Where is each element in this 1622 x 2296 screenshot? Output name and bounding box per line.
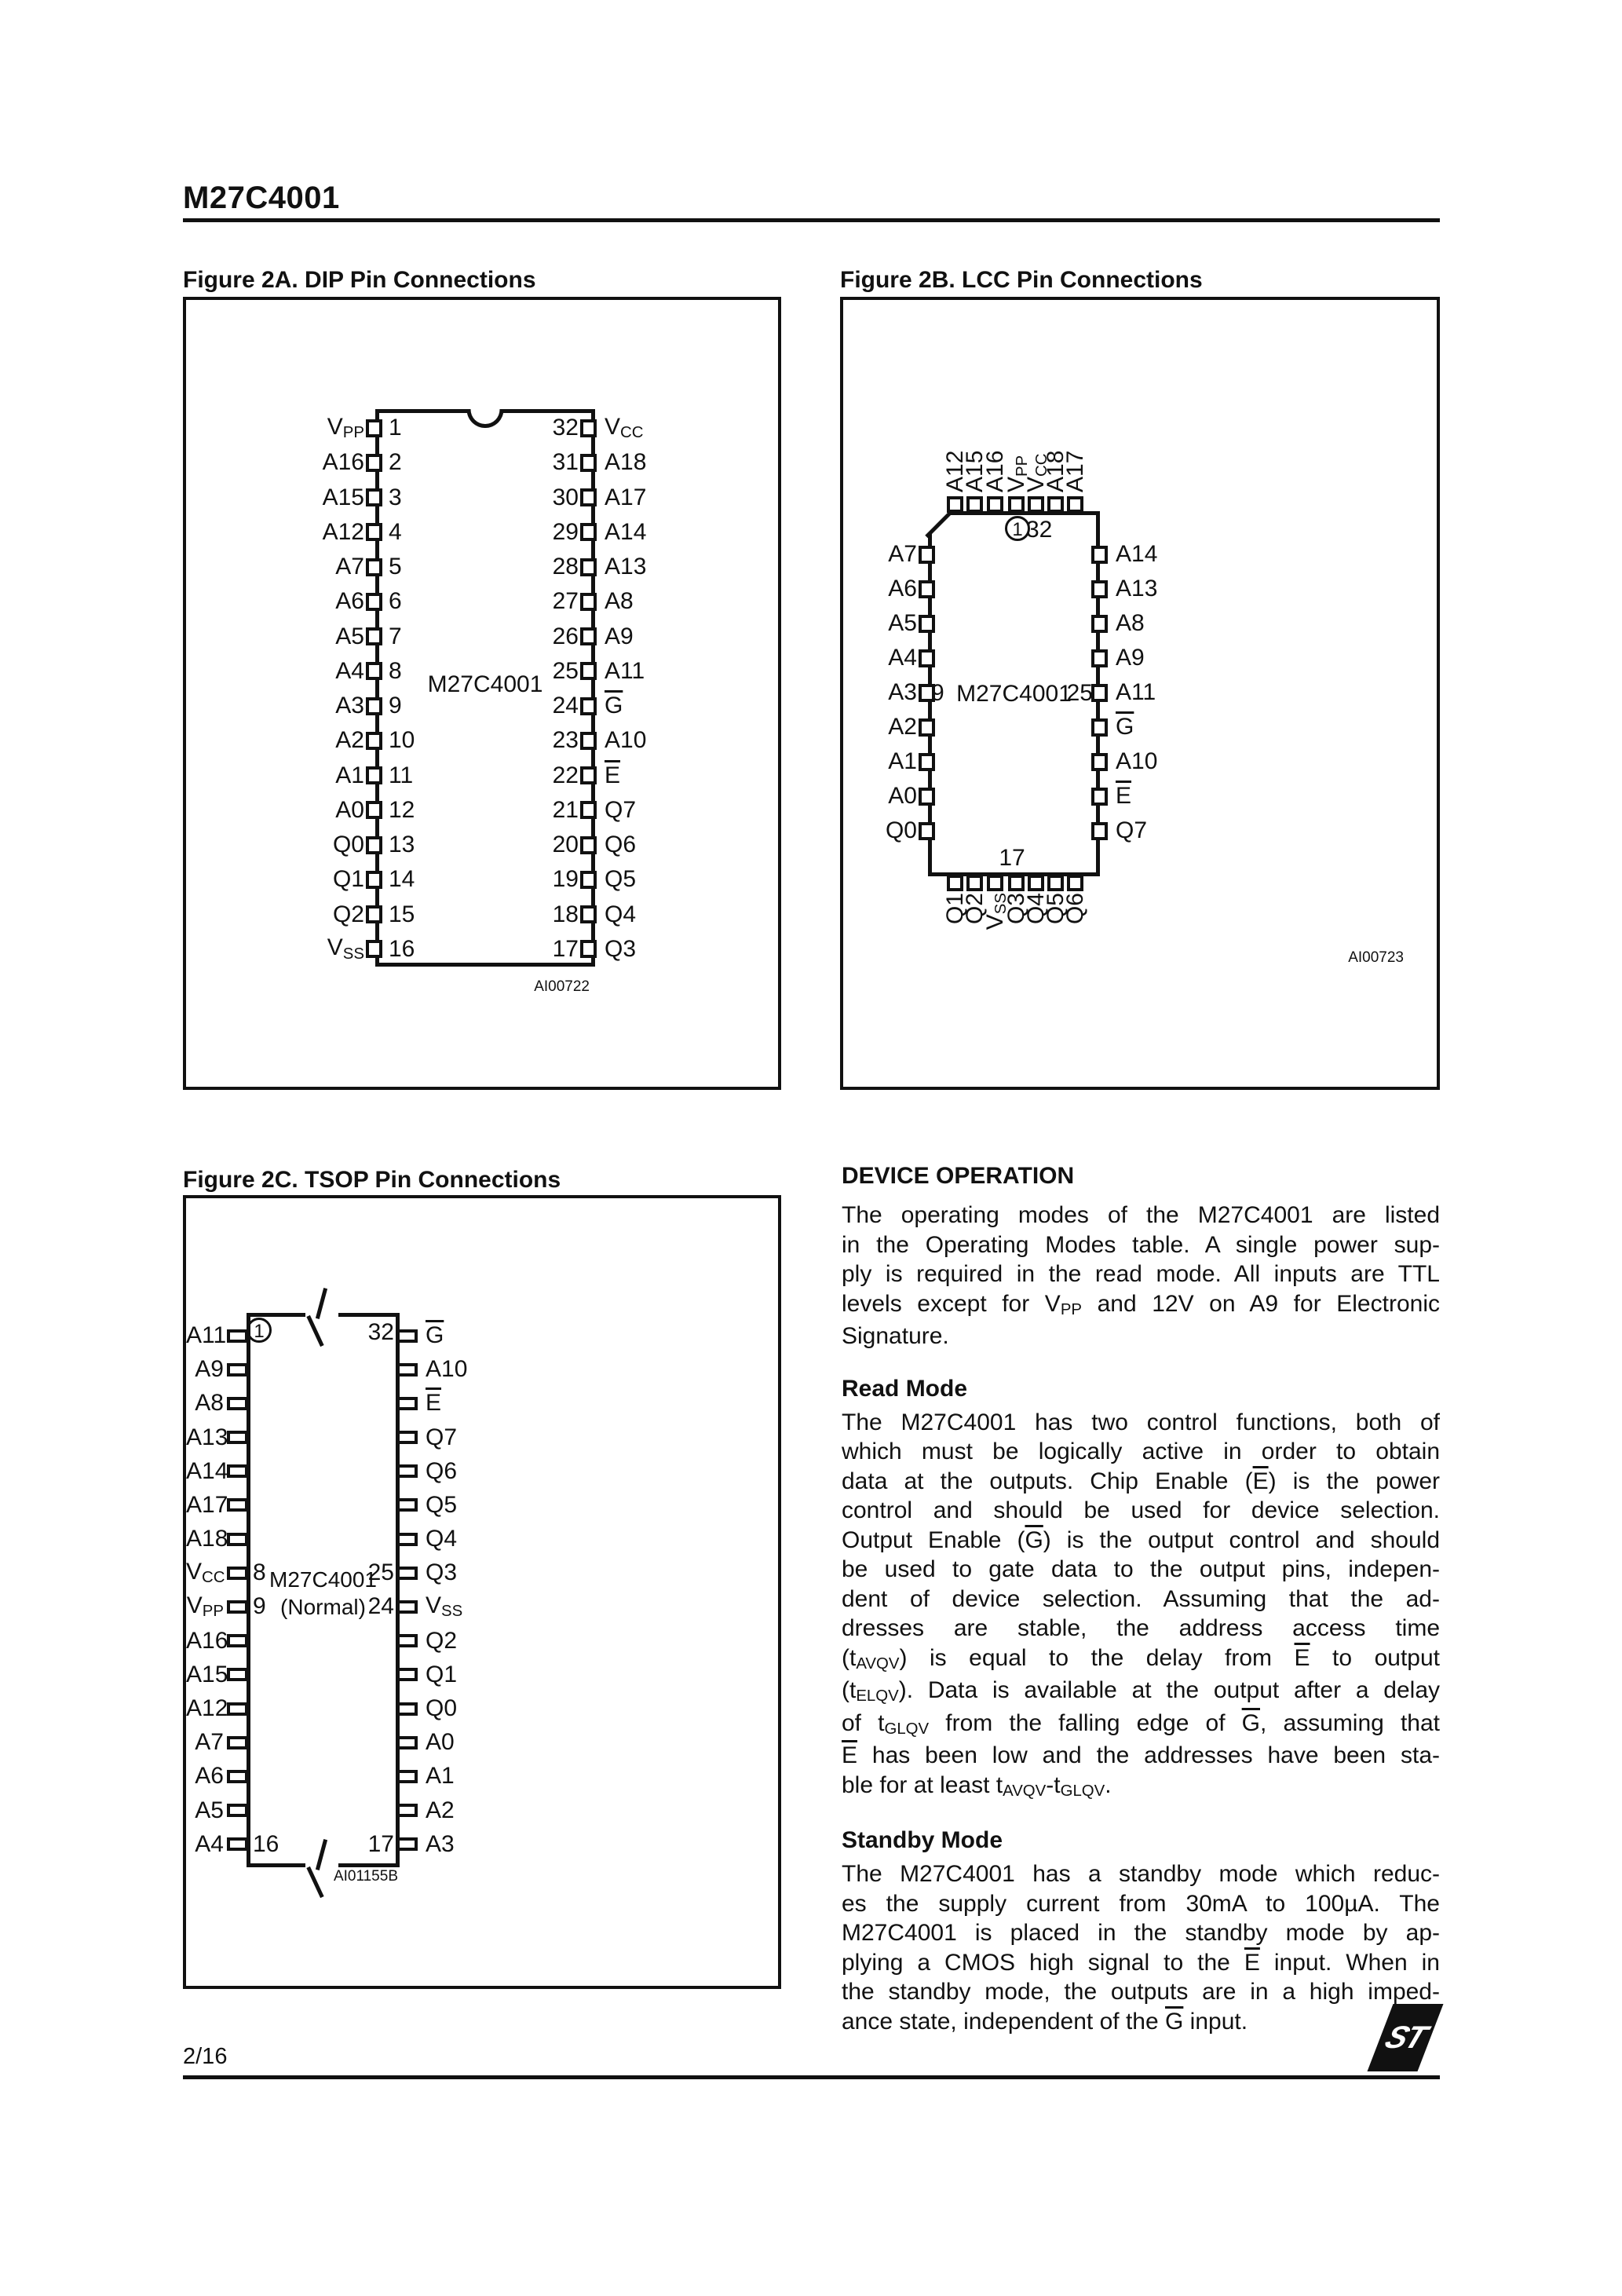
pin-label-right: A14 [597,520,784,545]
pin-label-left: A11 [186,1323,227,1348]
pin-number-left: 10 [382,728,418,753]
dip-pin-row: A5 7 26 A9 [186,624,784,649]
tsop-pin17-number: 17 [355,1833,394,1856]
pin-stub-left-icon [227,1736,248,1749]
pin-stub-left-icon [227,1770,248,1783]
pin-stub-icon [1091,822,1108,840]
pin-stub-right-icon [396,1397,418,1410]
lcc-right-pin: A10 [1091,750,1441,773]
pin-stub-left-icon [366,766,382,784]
figure-2c-title: Figure 2C. TSOP Pin Connections [183,1167,561,1194]
st-logo-text: ST [1380,2020,1430,2056]
pin-number-right: 19 [539,867,579,892]
pin-label-left: VPP [186,415,366,442]
pin-label-right: VSS [418,1593,784,1621]
pin-stub-icon [1067,875,1083,891]
pin-stub-right-icon [396,1464,418,1478]
pin-label-left: A4 [186,659,366,684]
pin-number-left: 14 [382,867,418,892]
text-line: M27C4001 is placed in the standby mode b… [842,1918,1440,1948]
pin-stub-right-icon [580,940,597,958]
pin-label: A8 [1108,611,1145,636]
pin-stub-right-icon [396,1363,418,1377]
text-line: which must be logically active in order … [842,1437,1440,1467]
lcc-right-pin: E [1091,784,1441,808]
text-line: dent of device selection. Assuming that … [842,1585,1440,1614]
tsop-pin-row: A9 A10 [186,1358,784,1381]
pin-label-right: Q5 [597,867,784,892]
text-line: levels except for VPP and 12V on A9 for … [842,1289,1440,1322]
pin-stub-left-icon [366,732,382,750]
pin-stub-right-icon [580,454,597,472]
pin-label-right: A11 [597,659,784,684]
pin-number-right: 22 [539,763,579,788]
lcc-left-pin: A3 [843,681,935,704]
pin-number-right: 17 [539,937,579,962]
text-line: the standby mode, the outputs are in a h… [842,1977,1440,2007]
pin-stub-right-icon [580,732,597,750]
pin-stub-left-icon [227,1702,248,1716]
pin-label: A4 [843,645,919,671]
pin-label-right: VCC [597,415,784,442]
pin-number-right: 20 [539,832,579,857]
text-line: The M27C4001 has a standby mode which re… [842,1859,1440,1889]
figure-2b-frame: A12 A15 A16 VPP [840,297,1440,1090]
tsop-pin-row: A14 Q6 [186,1460,784,1483]
pin-stub-icon [1091,546,1108,564]
pin-stub-left-icon [366,905,382,923]
lcc-left-pin: A1 [843,750,935,773]
pin-stub-right-icon [396,1668,418,1681]
lcc-right-pin: A9 [1091,646,1441,670]
lcc-chip-name: M27C4001 [928,682,1100,707]
pin-label-right: Q3 [418,1560,784,1585]
device-operation-heading: DEVICE OPERATION [842,1164,1440,1188]
lcc-left-pin: A4 [843,646,935,670]
lcc-left-pins: A7 A6 A5 A4 A3 [843,543,935,843]
pin-stub-left-icon [366,697,382,715]
tsop-pin-row: A17 Q5 [186,1493,784,1517]
pin-label-right: A9 [597,624,784,649]
pin-stub-icon [919,822,935,840]
pin-stub-left-icon [366,940,382,958]
page-number: 2/16 [183,2044,227,2070]
lcc-left-pin: A6 [843,577,935,601]
figure-2c-frame: A11 G A9 A10 A8 [183,1195,781,1989]
pin-label: A10 [1108,749,1157,774]
pin-label-left: A15 [186,485,366,510]
pin-stub-left-icon [366,419,382,437]
pin-stub-icon [987,875,1003,891]
pin-stub-left-icon [227,1431,248,1444]
pin-number-left: 13 [382,832,418,857]
pin-label-right: Q6 [418,1459,784,1484]
device-operation-section: DEVICE OPERATION The operating modes of … [842,1164,1440,2036]
text-line: control and should be used for device se… [842,1496,1440,1526]
pin-number-left: 1 [382,415,418,441]
tsop-pin-row: A12 Q0 [186,1697,784,1720]
pin-stub-icon [1091,649,1108,667]
pin-stub-icon [919,615,935,633]
pin-number-right: 21 [539,798,579,823]
dip-pin-row: Q1 14 19 Q5 [186,867,784,892]
pin-label: A17 [1063,375,1087,492]
pin-label-right: E [597,763,784,788]
lcc-left-pin: A2 [843,715,935,739]
pin-stub-left-icon [366,454,382,472]
pin-label-right: Q7 [597,798,784,823]
pin-number-right: 30 [539,485,579,510]
lcc-right-pin: Q7 [1091,819,1441,843]
pin-stub-icon [919,546,935,564]
pin-stub-icon [947,496,963,513]
text-line: in the Operating Modes table. A single p… [842,1230,1440,1260]
pin-label-left: A0 [186,798,366,823]
pin-stub-icon [1067,496,1083,513]
dip-pin-row: A6 6 27 A8 [186,589,784,614]
header-rule [183,218,1440,222]
tsop-pin-row: A13 Q7 [186,1426,784,1450]
dip-pin-row: Q0 13 20 Q6 [186,832,784,857]
tsop-pin-row: A18 Q4 [186,1527,784,1551]
pin-label-left: A6 [186,1764,227,1789]
text-line: (tAVQV) is equal to the delay from E to … [842,1643,1440,1676]
pin-stub-right-icon [580,697,597,715]
pin-label-right: A3 [418,1832,784,1857]
pin-stub-right-icon [396,1533,418,1546]
pin-stub-left-icon [227,1567,248,1580]
lcc-left-pin: A7 [843,543,935,566]
pin-number-right: 26 [539,624,579,649]
text-line: es the supply current from 30mA to 100µA… [842,1889,1440,1919]
pin-stub-left-icon [227,1498,248,1512]
dip-pin-row: A12 4 29 A14 [186,520,784,545]
pin-stub-right-icon [580,871,597,889]
pin-label-left: A6 [186,589,366,614]
lcc-right-pin: A8 [1091,612,1441,635]
pin-label-right: A2 [418,1798,784,1823]
tsop-chip-name-line1: M27C4001 [247,1566,400,1593]
pin-stub-right-icon [580,905,597,923]
tsop-pin-row: A5 A2 [186,1799,784,1823]
pin-label-left: A16 [186,450,366,475]
pin-stub-icon [966,496,983,513]
text-line: plying a CMOS high signal to the E input… [842,1948,1440,1978]
pin-label-right: A8 [597,589,784,614]
st-logo: ST [1369,2001,1441,2075]
pin-stub-icon [947,875,963,891]
device-operation-intro: The operating modes of the M27C4001 are … [842,1201,1440,1351]
pin-number-left: 12 [382,798,418,823]
pin-stub-right-icon [396,1702,418,1716]
lcc-left-pin: A5 [843,612,935,635]
pin-stub-right-icon [396,1770,418,1783]
pin-label-left: A8 [186,1391,227,1416]
pin-label: A7 [843,542,919,567]
pin-number-left: 3 [382,485,418,510]
dip-pin-row: A0 12 21 Q7 [186,798,784,823]
figure-2b-title: Figure 2B. LCC Pin Connections [840,267,1203,294]
pin-stub-right-icon [580,488,597,506]
pin-number-left: 5 [382,554,418,579]
tsop-pin16-number: 16 [253,1833,279,1856]
read-mode-heading: Read Mode [842,1377,1440,1401]
read-mode-paragraph: The M27C4001 has two control functions, … [842,1408,1440,1804]
figure-2c-caption: AI01155B [280,1869,398,1885]
pin-label-left: A4 [186,1832,227,1857]
pin-label-left: A7 [186,1730,227,1755]
pin-stub-left-icon [366,488,382,506]
pin-label-left: A3 [186,693,366,718]
pin-label-right: A0 [418,1730,784,1755]
pin-stub-right-icon [580,593,597,611]
pin-label-right: Q4 [418,1526,784,1552]
lcc-right-pin: G [1091,715,1441,739]
pin-label: A16 [983,375,1006,492]
pin-stub-right-icon [396,1600,418,1614]
lcc-pin32-number: 32 [1026,517,1058,543]
tsop-pin-row: A11 G [186,1324,784,1347]
tsop-chip-name-line2: (Normal) [247,1593,400,1621]
figure-2a-title: Figure 2A. DIP Pin Connections [183,267,536,294]
text-line: data at the outputs. Chip Enable (E) is … [842,1467,1440,1497]
pin-stub-icon [919,649,935,667]
text-line: of tGLQV from the falling edge of G, ass… [842,1709,1440,1742]
pin-label-left: A9 [186,1357,227,1382]
pin-stub-left-icon [366,558,382,576]
pin-number-left: 7 [382,624,418,649]
pin-stub-icon [1091,580,1108,598]
pin-label: Q7 [1108,818,1147,843]
text-line: be used to gate data to the output pins,… [842,1555,1440,1585]
pin-label-left: A15 [186,1662,227,1687]
pin-number-right: 23 [539,728,579,753]
pin-stub-left-icon [366,836,382,854]
dip-pin-row: Q2 15 18 Q4 [186,902,784,927]
pin-label: A5 [843,611,919,636]
tsop-pin-row: A7 A0 [186,1731,784,1754]
dip-pin-row: A2 10 23 A10 [186,728,784,753]
figure-2a-frame: VPP 1 32 VCC A16 2 31 [183,297,781,1090]
text-line: ply is required in the read mode. All in… [842,1260,1440,1289]
pin-label-left: Q0 [186,832,366,857]
pin-number-left: 4 [382,520,418,545]
tsop-chip-name: M27C4001 (Normal) [247,1566,400,1621]
pin-label-right: Q7 [418,1425,784,1450]
text-line: Output Enable (G) is the output control … [842,1526,1440,1556]
pin-stub-left-icon [227,1804,248,1817]
dip-pin-row: A7 5 28 A13 [186,554,784,579]
pin-label-right: A1 [418,1764,784,1789]
pin-label-left: A16 [186,1629,227,1654]
pin-label-left: A7 [186,554,366,579]
pin-stub-icon [1008,875,1025,891]
pin-label-left: A12 [186,520,366,545]
dip-pin-row: A15 3 30 A17 [186,485,784,510]
pin-label-right: A10 [597,728,784,753]
pin-stub-left-icon [227,1600,248,1614]
pin-stub-icon [1091,788,1108,806]
pin-label: A1 [843,749,919,774]
pin-stub-left-icon [227,1329,248,1343]
standby-mode-heading: Standby Mode [842,1828,1440,1852]
pin-label-right: A13 [597,554,784,579]
pin-stub-icon [919,753,935,771]
pin-label-left: A5 [186,1798,227,1823]
pin-stub-right-icon [396,1634,418,1647]
text-line: E has been low and the addresses have be… [842,1741,1440,1771]
pin-label-right: Q6 [597,832,784,857]
dip-pin-row: A16 2 31 A18 [186,450,784,475]
pin-label: A9 [1108,645,1145,671]
pin-label-left: A5 [186,624,366,649]
pin-stub-left-icon [366,627,382,645]
pin-label: A14 [1108,542,1157,567]
pin-label: A11 [1108,680,1156,705]
pin-stub-left-icon [366,593,382,611]
pin-label-left: VSS [186,935,366,963]
lcc-left-pin: Q0 [843,819,935,843]
pin-stub-right-icon [396,1736,418,1749]
pin-stub-right-icon [580,836,597,854]
pin-stub-icon [1047,496,1064,513]
pin-label-right: A17 [597,485,784,510]
pin-stub-icon [1091,718,1108,737]
tsop-pin-row: A16 Q2 [186,1629,784,1653]
pin-stub-right-icon [396,1804,418,1817]
dip-pin-row: VPP 1 32 VCC [186,415,784,441]
pin-stub-icon [1028,875,1044,891]
pin-stub-right-icon [396,1329,418,1343]
pin-label-left: A13 [186,1425,227,1450]
pin-stub-right-icon [580,766,597,784]
pin-label-right: Q4 [597,902,784,927]
pin-number-left: 6 [382,589,418,614]
pin-stub-icon [1091,753,1108,771]
tsop-pin-row: A8 E [186,1391,784,1415]
pin-number-right: 18 [539,902,579,927]
pin-stub-icon [987,496,1003,513]
pin-stub-icon [1047,875,1064,891]
tsop-pin-row: A6 A1 [186,1764,784,1788]
text-line: dresses are stable, the address access t… [842,1614,1440,1643]
pin-label-left: A12 [186,1696,227,1721]
figure-2a-caption: AI00722 [393,979,590,995]
pin-stub-right-icon [396,1431,418,1444]
pin-label-right: G [597,693,784,718]
pin-stub-left-icon [227,1634,248,1647]
pin-stub-left-icon [227,1464,248,1478]
pin-label-left: A17 [186,1493,227,1518]
pin-stub-right-icon [580,558,597,576]
pin-label-right: Q2 [418,1629,784,1654]
pin-label-right: Q1 [418,1662,784,1687]
pin-number-right: 29 [539,520,579,545]
pin-label: Q6 [1063,893,1087,1011]
pin-label-left: Q2 [186,902,366,927]
pin-label: Q0 [843,818,919,843]
lcc-right-pin: A11 [1091,681,1441,704]
pin-stub-icon [919,580,935,598]
pin-label: A13 [1108,576,1157,601]
lcc-right-pin: A14 [1091,543,1441,566]
pin-stub-left-icon [366,523,382,541]
pin-stub-left-icon [227,1363,248,1377]
tsop-pin32-number: 32 [355,1321,394,1344]
pin-stub-right-icon [396,1837,418,1851]
lcc-right-pins: A14 A13 A8 A9 A1 [1091,543,1441,843]
text-line: The operating modes of the M27C4001 are … [842,1201,1440,1230]
pin-stub-left-icon [366,871,382,889]
pin-stub-icon [966,875,983,891]
pin-stub-right-icon [396,1567,418,1580]
pin-stub-icon [1008,496,1025,513]
lcc-left-pin: A0 [843,784,935,808]
pin-number-left: 11 [382,763,418,788]
pin-label-right: G [418,1323,784,1348]
datasheet-page: M27C4001 Figure 2A. DIP Pin Connections … [0,0,1622,2296]
st-logo-shape: ST [1367,2004,1443,2071]
pin-label-left: A18 [186,1526,227,1552]
text-line: The M27C4001 has two control functions, … [842,1408,1440,1438]
pin-label-right: E [418,1391,784,1416]
dip-pin-row: A1 11 22 E [186,763,784,788]
tsop-pin-row: A15 Q1 [186,1663,784,1687]
pin-label-left: VPP [186,1593,227,1621]
text-line: (tELQV). Data is available at the output… [842,1676,1440,1709]
pin-stub-left-icon [366,801,382,819]
dip-chip-name: M27C4001 [375,672,595,697]
pin-stub-right-icon [580,627,597,645]
pin-stub-left-icon [227,1533,248,1546]
pin-label-right: Q5 [418,1493,784,1518]
pin-number-right: 31 [539,450,579,475]
pin-stub-right-icon [396,1498,418,1512]
dip-pin-row: VSS 16 17 Q3 [186,937,784,962]
pin-stub-left-icon [227,1837,248,1851]
figure-2b-caption: AI00723 [1192,950,1404,966]
text-line: ance state, independent of the G input. [842,2007,1440,2037]
pin-number-right: 27 [539,589,579,614]
pin-number-left: 2 [382,450,418,475]
pin-number-left: 15 [382,902,418,927]
pin-label: A2 [843,715,919,740]
pin-stub-right-icon [580,801,597,819]
pin-stub-icon [1028,496,1044,513]
tsop-pin1-circled-number: 1 [247,1318,272,1343]
text-line: Signature. [842,1322,1440,1351]
pin-label-left: VCC [186,1559,227,1587]
pin-label-right: Q0 [418,1696,784,1721]
pin-label: G [1108,715,1134,740]
pin-number-right: 32 [539,415,579,441]
pin-stub-icon [919,788,935,806]
pin-stub-left-icon [227,1397,248,1410]
pin-label-left: Q1 [186,867,366,892]
pin-label: E [1108,784,1131,809]
pin-stub-left-icon [227,1668,248,1681]
pin-label-right: Q3 [597,937,784,962]
page-title: M27C4001 [183,181,340,216]
standby-mode-paragraph: The M27C4001 has a standby mode which re… [842,1859,1440,2036]
pin-label: A6 [843,576,919,601]
pin-label: A3 [843,680,919,705]
pin-label-right: A18 [597,450,784,475]
pin-label-right: A10 [418,1357,784,1382]
pin-stub-right-icon [580,419,597,437]
pin-number-right: 28 [539,554,579,579]
text-line: ble for at least tAVQV-tGLQV. [842,1771,1440,1804]
